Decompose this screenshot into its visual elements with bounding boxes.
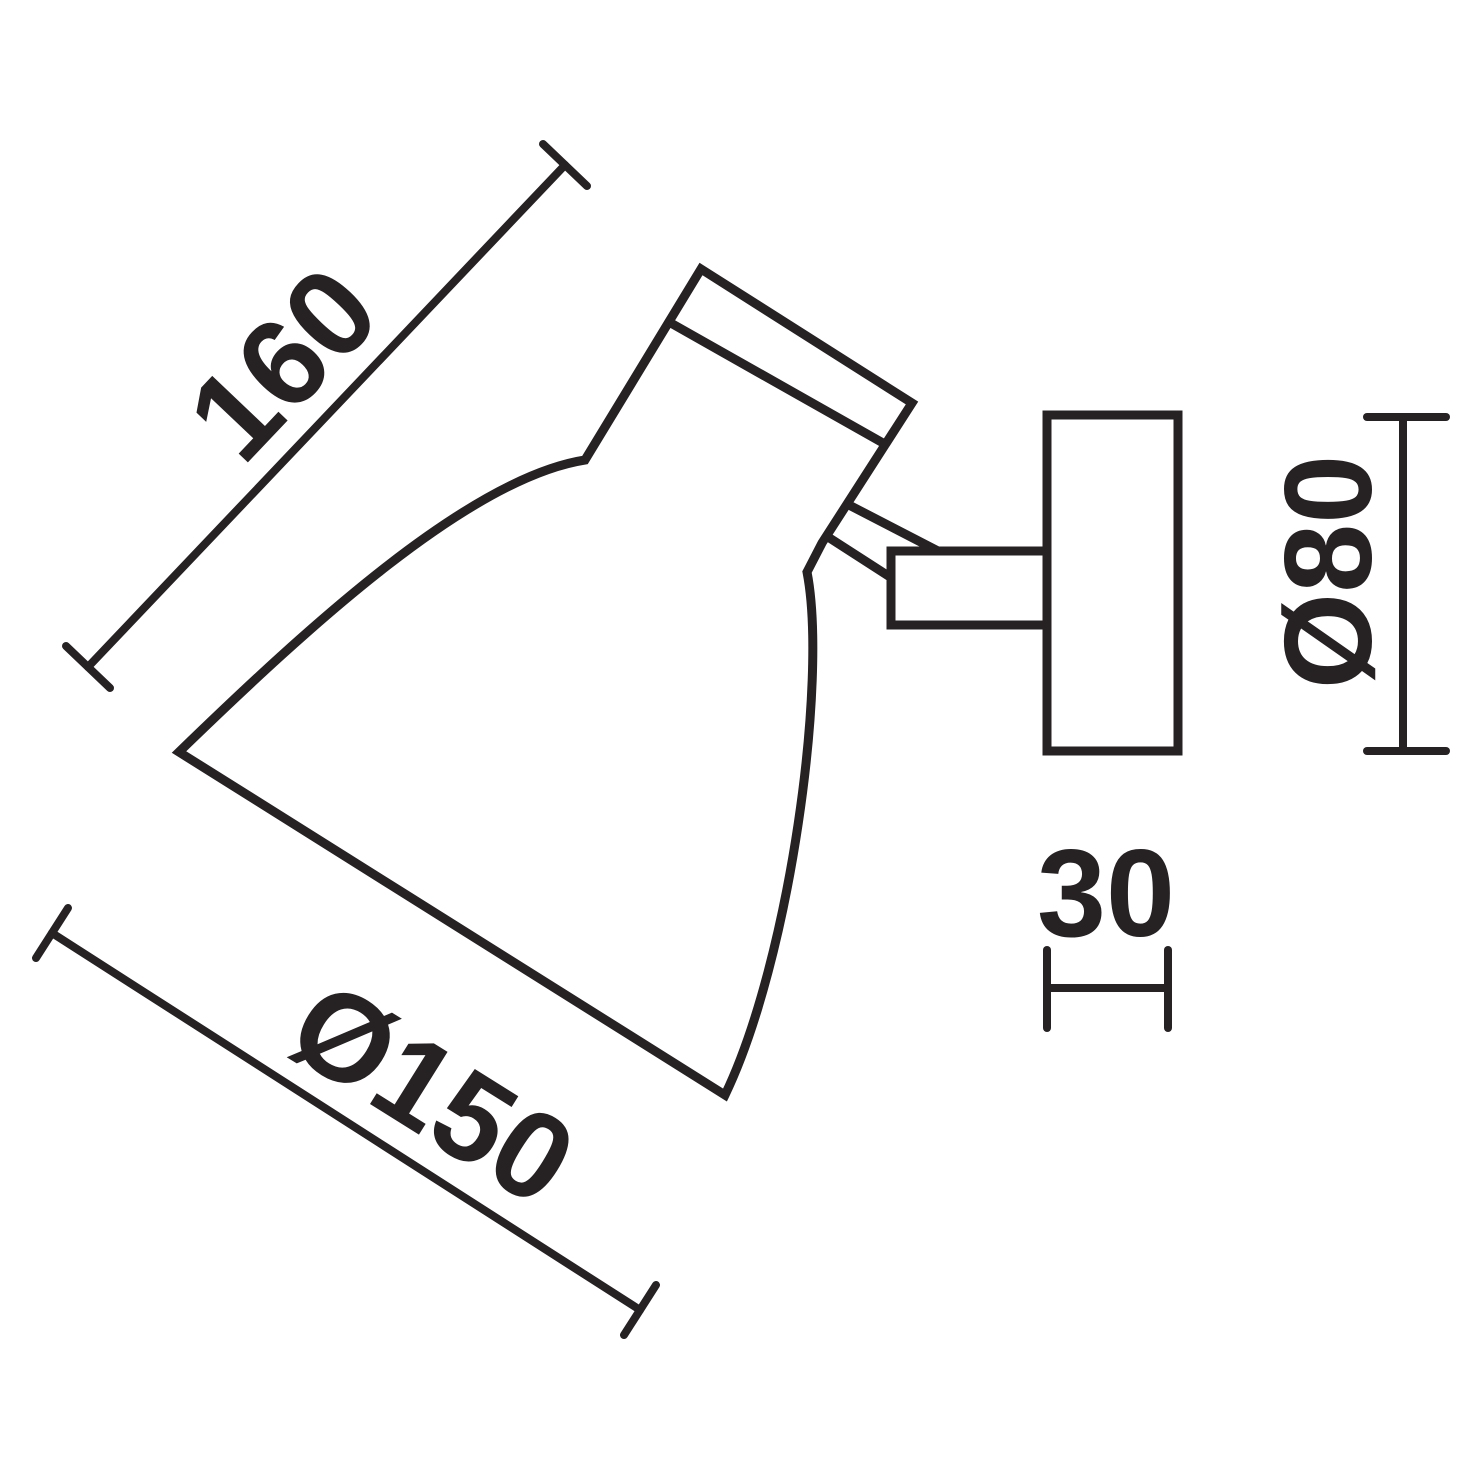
pivot-arm-lower-line	[828, 537, 890, 577]
dimension-80: Ø80	[1260, 417, 1446, 751]
arm-block	[891, 551, 1047, 625]
wall-plate	[1047, 415, 1178, 751]
dim-150-tick-end	[624, 1285, 656, 1335]
dim-160-label: 160	[162, 242, 405, 487]
dimension-150: Ø150	[36, 908, 656, 1335]
dim-150-label: Ø150	[267, 955, 597, 1233]
dim-30-label: 30	[1037, 825, 1175, 963]
drawing-canvas: 160 Ø150 Ø80 30	[0, 0, 1476, 1476]
dimension-160: 160	[66, 144, 587, 688]
dim-150-tick-start	[36, 908, 68, 958]
spotlight-dimension-drawing: 160 Ø150 Ø80 30	[0, 0, 1476, 1476]
dim-80-label: Ø80	[1260, 455, 1398, 689]
pivot-arm-upper-line	[849, 505, 938, 551]
dimension-30: 30	[1037, 825, 1175, 1028]
neck-rim-line	[669, 322, 883, 443]
